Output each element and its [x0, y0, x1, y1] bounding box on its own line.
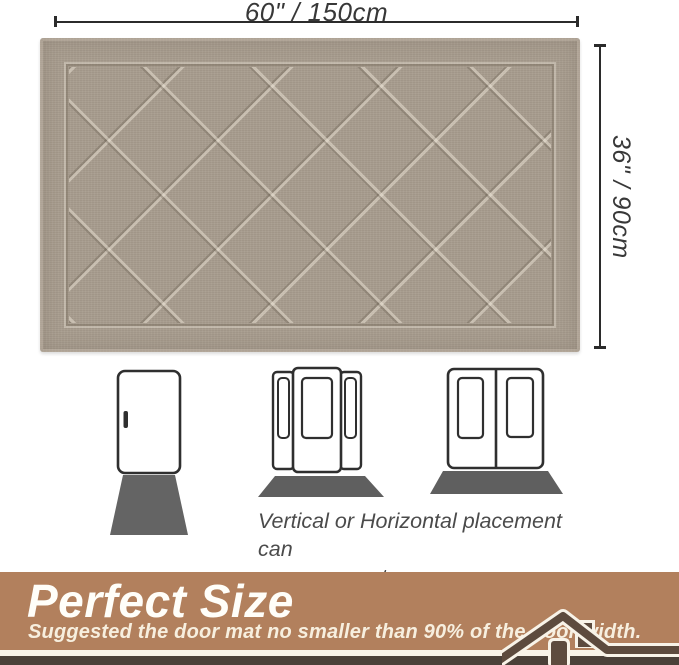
mat-diamond-pattern — [69, 67, 551, 323]
height-dimension-line — [599, 45, 601, 349]
single-door-icon — [99, 368, 191, 538]
height-dimension-cap-top — [594, 44, 606, 47]
width-dimension-label: 60" / 150cm — [55, 0, 578, 28]
height-dimension-cap-bottom — [594, 346, 606, 349]
banner-title: Perfect Size — [27, 574, 294, 628]
height-dimension-label: 36" / 90cm — [606, 45, 635, 349]
product-infographic: 60" / 150cm 36" / 90cm Vertical or Horiz — [0, 0, 679, 665]
horizontal-mat-icon — [430, 471, 563, 494]
vertical-mat-icon — [110, 475, 188, 535]
doormat-photo — [40, 38, 580, 352]
width-dimension-cap-left — [54, 16, 57, 27]
house-icon — [502, 597, 679, 665]
double-door-icon — [425, 366, 570, 498]
door-with-sidelights-icon — [248, 366, 388, 498]
horizontal-mat-icon — [258, 476, 384, 497]
width-dimension-line — [55, 21, 578, 23]
width-dimension-cap-right — [576, 16, 579, 27]
placement-caption-line1: Vertical or Horizontal placement can — [258, 509, 562, 561]
